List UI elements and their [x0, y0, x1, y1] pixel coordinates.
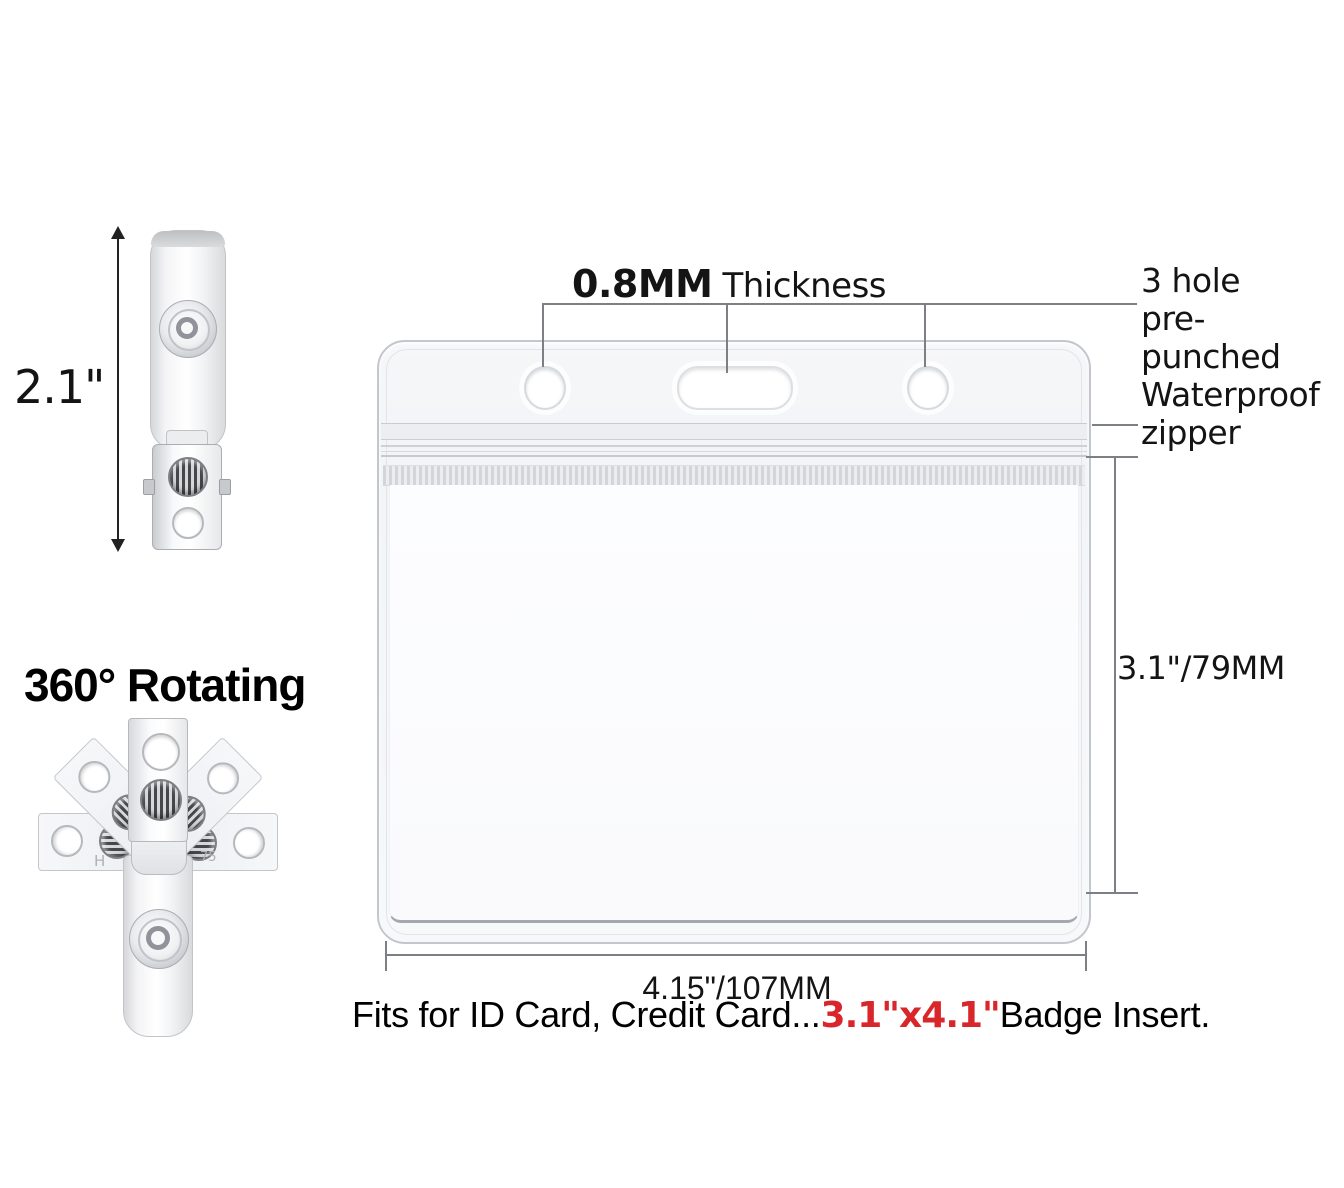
caption-size-highlight: 3.1"x4.1": [821, 995, 1000, 1036]
thickness-text: Thickness: [722, 266, 886, 306]
arrow-down-icon: [111, 539, 125, 552]
clip-right-pin: [219, 479, 231, 495]
holder-width-dim-cap-left: [385, 941, 387, 971]
holes-note: 3 hole pre-punched: [1141, 262, 1344, 376]
rotating-clip-figure: H 75: [0, 700, 340, 1050]
fold-seam: [381, 423, 1087, 440]
callout-drop-center-slot: [726, 303, 728, 373]
caption-suffix: Badge Insert.: [1000, 994, 1210, 1035]
callout-drop-right-hole: [924, 303, 926, 367]
arrow-up-icon: [111, 226, 125, 239]
caption-prefix: Fits for ID Card, Credit Card...: [352, 994, 821, 1035]
zipper-note-line2: zipper: [1141, 414, 1319, 452]
clip-hole: [142, 733, 180, 771]
thickness-label: 0.8MMThickness: [479, 262, 979, 306]
waterproof-zipper-strip: [383, 465, 1085, 486]
snap-button-center: [176, 317, 198, 339]
fits-caption: Fits for ID Card, Credit Card...3.1"x4.1…: [352, 994, 1210, 1036]
holder-width-dim-cap-right: [1085, 941, 1087, 971]
zipper-callout-line: [1092, 424, 1138, 426]
punch-slot-center: [677, 366, 793, 410]
metal-stamp-right: 75: [200, 850, 217, 865]
clip-hole: [51, 825, 83, 857]
zipper-note: Waterproof zipper: [1141, 376, 1319, 452]
clip-thumb-grip: [168, 457, 208, 497]
product-diagram: 2.1" 360° Rotating H 75: [0, 0, 1344, 1188]
callout-drop-left-hole: [542, 303, 544, 367]
punch-hole-right: [907, 366, 949, 410]
punch-hole-left: [524, 366, 566, 410]
clip-hole: [233, 827, 265, 859]
card-pocket: [389, 485, 1079, 923]
thickness-bracket-line: [543, 303, 1137, 305]
holder-height-dim-cap-top: [1086, 456, 1138, 458]
seam-line: [381, 455, 1087, 457]
clip-jaw-body: [152, 444, 222, 550]
holder-height-dim-line: [1114, 457, 1116, 894]
snap-button-center: [146, 926, 170, 950]
seam-line: [381, 445, 1087, 447]
seam-line: [381, 451, 1087, 452]
clip-left-pin: [143, 479, 155, 495]
holes-note-line1: 3 hole: [1141, 262, 1344, 300]
metal-stamp-left: H: [94, 852, 105, 870]
clip-height-dimension-line: [117, 236, 119, 542]
clip-thumb-grip: [140, 779, 182, 821]
clip-strap-top-edge: [151, 231, 225, 247]
clip-upright: [128, 718, 188, 842]
clip-hole: [72, 754, 117, 799]
holder-height-label: 3.1"/79MM: [1117, 649, 1285, 687]
clip-lower-hole: [172, 507, 204, 539]
clip-hole: [200, 756, 245, 801]
holes-note-line2: pre-punched: [1141, 300, 1344, 376]
clip-height-label: 2.1": [14, 360, 104, 414]
holder-height-dim-cap-bottom: [1086, 892, 1138, 894]
holder-width-dim-line: [386, 954, 1086, 956]
rotating-clip-jaw: [131, 838, 187, 875]
thickness-value: 0.8MM: [572, 262, 712, 306]
badge-holder: [377, 340, 1091, 944]
zipper-note-line1: Waterproof: [1141, 376, 1319, 414]
